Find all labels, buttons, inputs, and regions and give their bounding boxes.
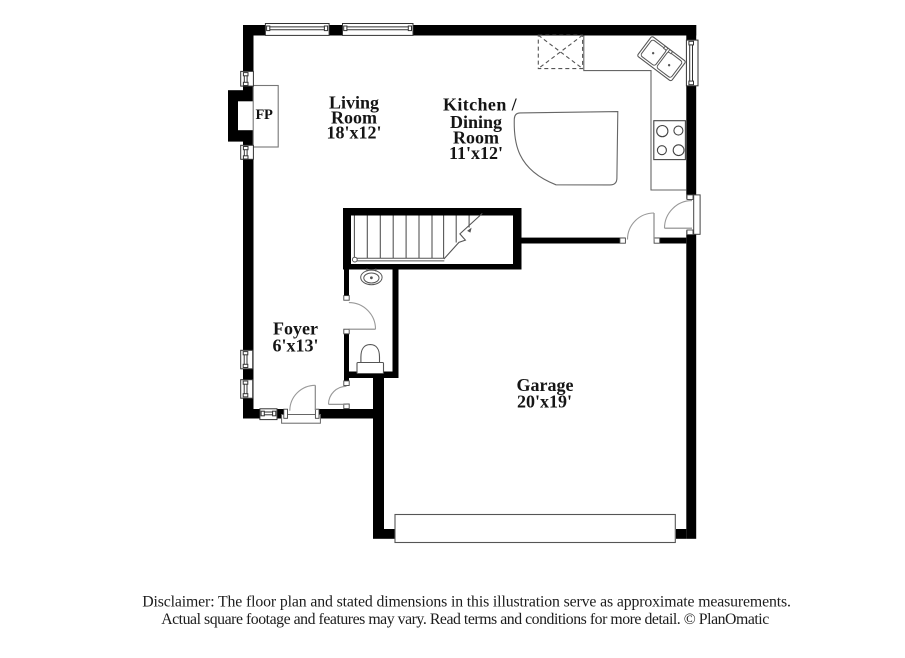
svg-text:18'x12': 18'x12' xyxy=(326,122,381,142)
svg-text:FP: FP xyxy=(255,107,273,123)
svg-text:Actual square footage and feat: Actual square footage and features may v… xyxy=(161,611,769,628)
svg-text:Disclaimer: The floor plan and: Disclaimer: The floor plan and stated di… xyxy=(142,594,791,611)
svg-text:11'x12': 11'x12' xyxy=(449,143,503,163)
svg-text:6'x13': 6'x13' xyxy=(272,335,318,355)
svg-text:20'x19': 20'x19' xyxy=(517,392,572,412)
